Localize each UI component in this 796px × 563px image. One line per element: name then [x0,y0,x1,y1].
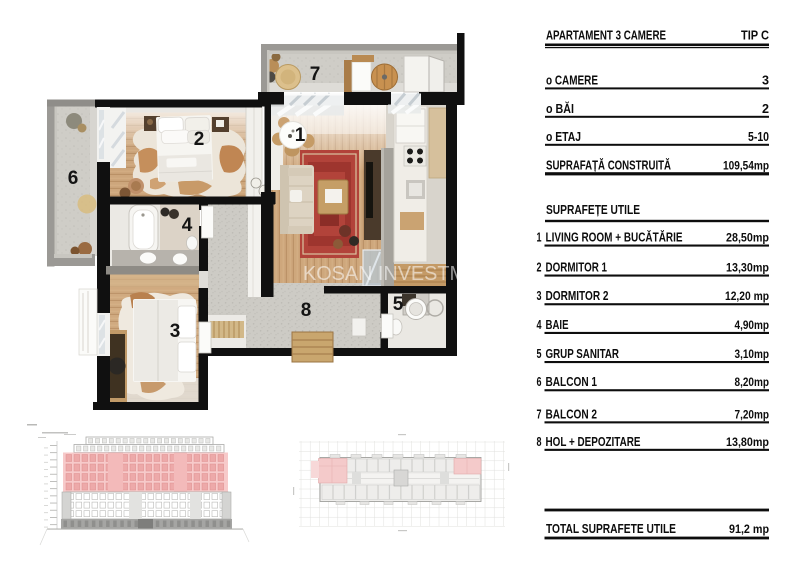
svg-text:13,30mp: 13,30mp [726,261,769,275]
svg-text:3: 3 [762,73,769,87]
svg-text:12,20 mp: 12,20 mp [725,289,769,303]
svg-text:BALCON 1: BALCON 1 [546,375,598,389]
svg-text:8,20mp: 8,20mp [735,375,770,389]
svg-text:o BĂI: o BĂI [546,101,574,116]
svg-text:SUPRAFAȚĂ CONSTRUITĂ: SUPRAFAȚĂ CONSTRUITĂ [546,157,671,172]
svg-text:APARTAMENT 3 CAMERE: APARTAMENT 3 CAMERE [546,29,666,43]
svg-text:5: 5 [393,294,404,315]
svg-text:3: 3 [537,289,542,303]
svg-text:6: 6 [68,168,79,189]
svg-text:3,10mp: 3,10mp [735,347,770,361]
svg-text:7,20mp: 7,20mp [735,407,770,421]
svg-text:LIVING ROOM + BUCĂTĂRIE: LIVING ROOM + BUCĂTĂRIE [546,230,683,245]
svg-text:BAIE: BAIE [546,318,569,332]
svg-text:4: 4 [182,215,193,236]
svg-text:5: 5 [537,347,542,361]
svg-text:DORMITOR 1: DORMITOR 1 [546,261,608,275]
svg-text:TIP C: TIP C [741,29,769,43]
svg-text:HOL + DEPOZITARE: HOL + DEPOZITARE [546,435,641,449]
svg-text:109,54mp: 109,54mp [723,158,769,172]
svg-text:GRUP SANITAR: GRUP SANITAR [546,347,620,361]
svg-text:6: 6 [537,375,542,389]
svg-text:KOSAN INVESTM: KOSAN INVESTM [303,262,466,285]
svg-text:DORMITOR 2: DORMITOR 2 [546,289,609,303]
svg-text:1: 1 [295,125,306,146]
svg-text:o ETAJ: o ETAJ [546,130,581,144]
svg-text:4: 4 [537,318,542,332]
svg-text:3: 3 [170,321,181,342]
svg-text:7: 7 [310,64,321,85]
svg-text:91,2 mp: 91,2 mp [729,522,769,536]
svg-text:BALCON 2: BALCON 2 [546,407,598,421]
svg-text:TOTAL SUPRAFETE UTILE: TOTAL SUPRAFETE UTILE [546,522,676,536]
svg-text:o CAMERE: o CAMERE [546,73,598,87]
svg-text:5-10: 5-10 [748,130,769,144]
svg-text:4,90mp: 4,90mp [735,318,770,332]
svg-text:1: 1 [537,231,542,245]
svg-text:7: 7 [537,407,542,421]
svg-text:8: 8 [537,435,542,449]
svg-text:2: 2 [762,102,769,116]
svg-text:28,50mp: 28,50mp [726,231,769,245]
svg-text:8: 8 [301,300,312,321]
svg-text:2: 2 [194,129,205,150]
svg-text:2: 2 [537,261,542,275]
svg-text:13,80mp: 13,80mp [726,435,769,449]
svg-text:SUPRAFEȚE UTILE: SUPRAFEȚE UTILE [546,203,640,217]
